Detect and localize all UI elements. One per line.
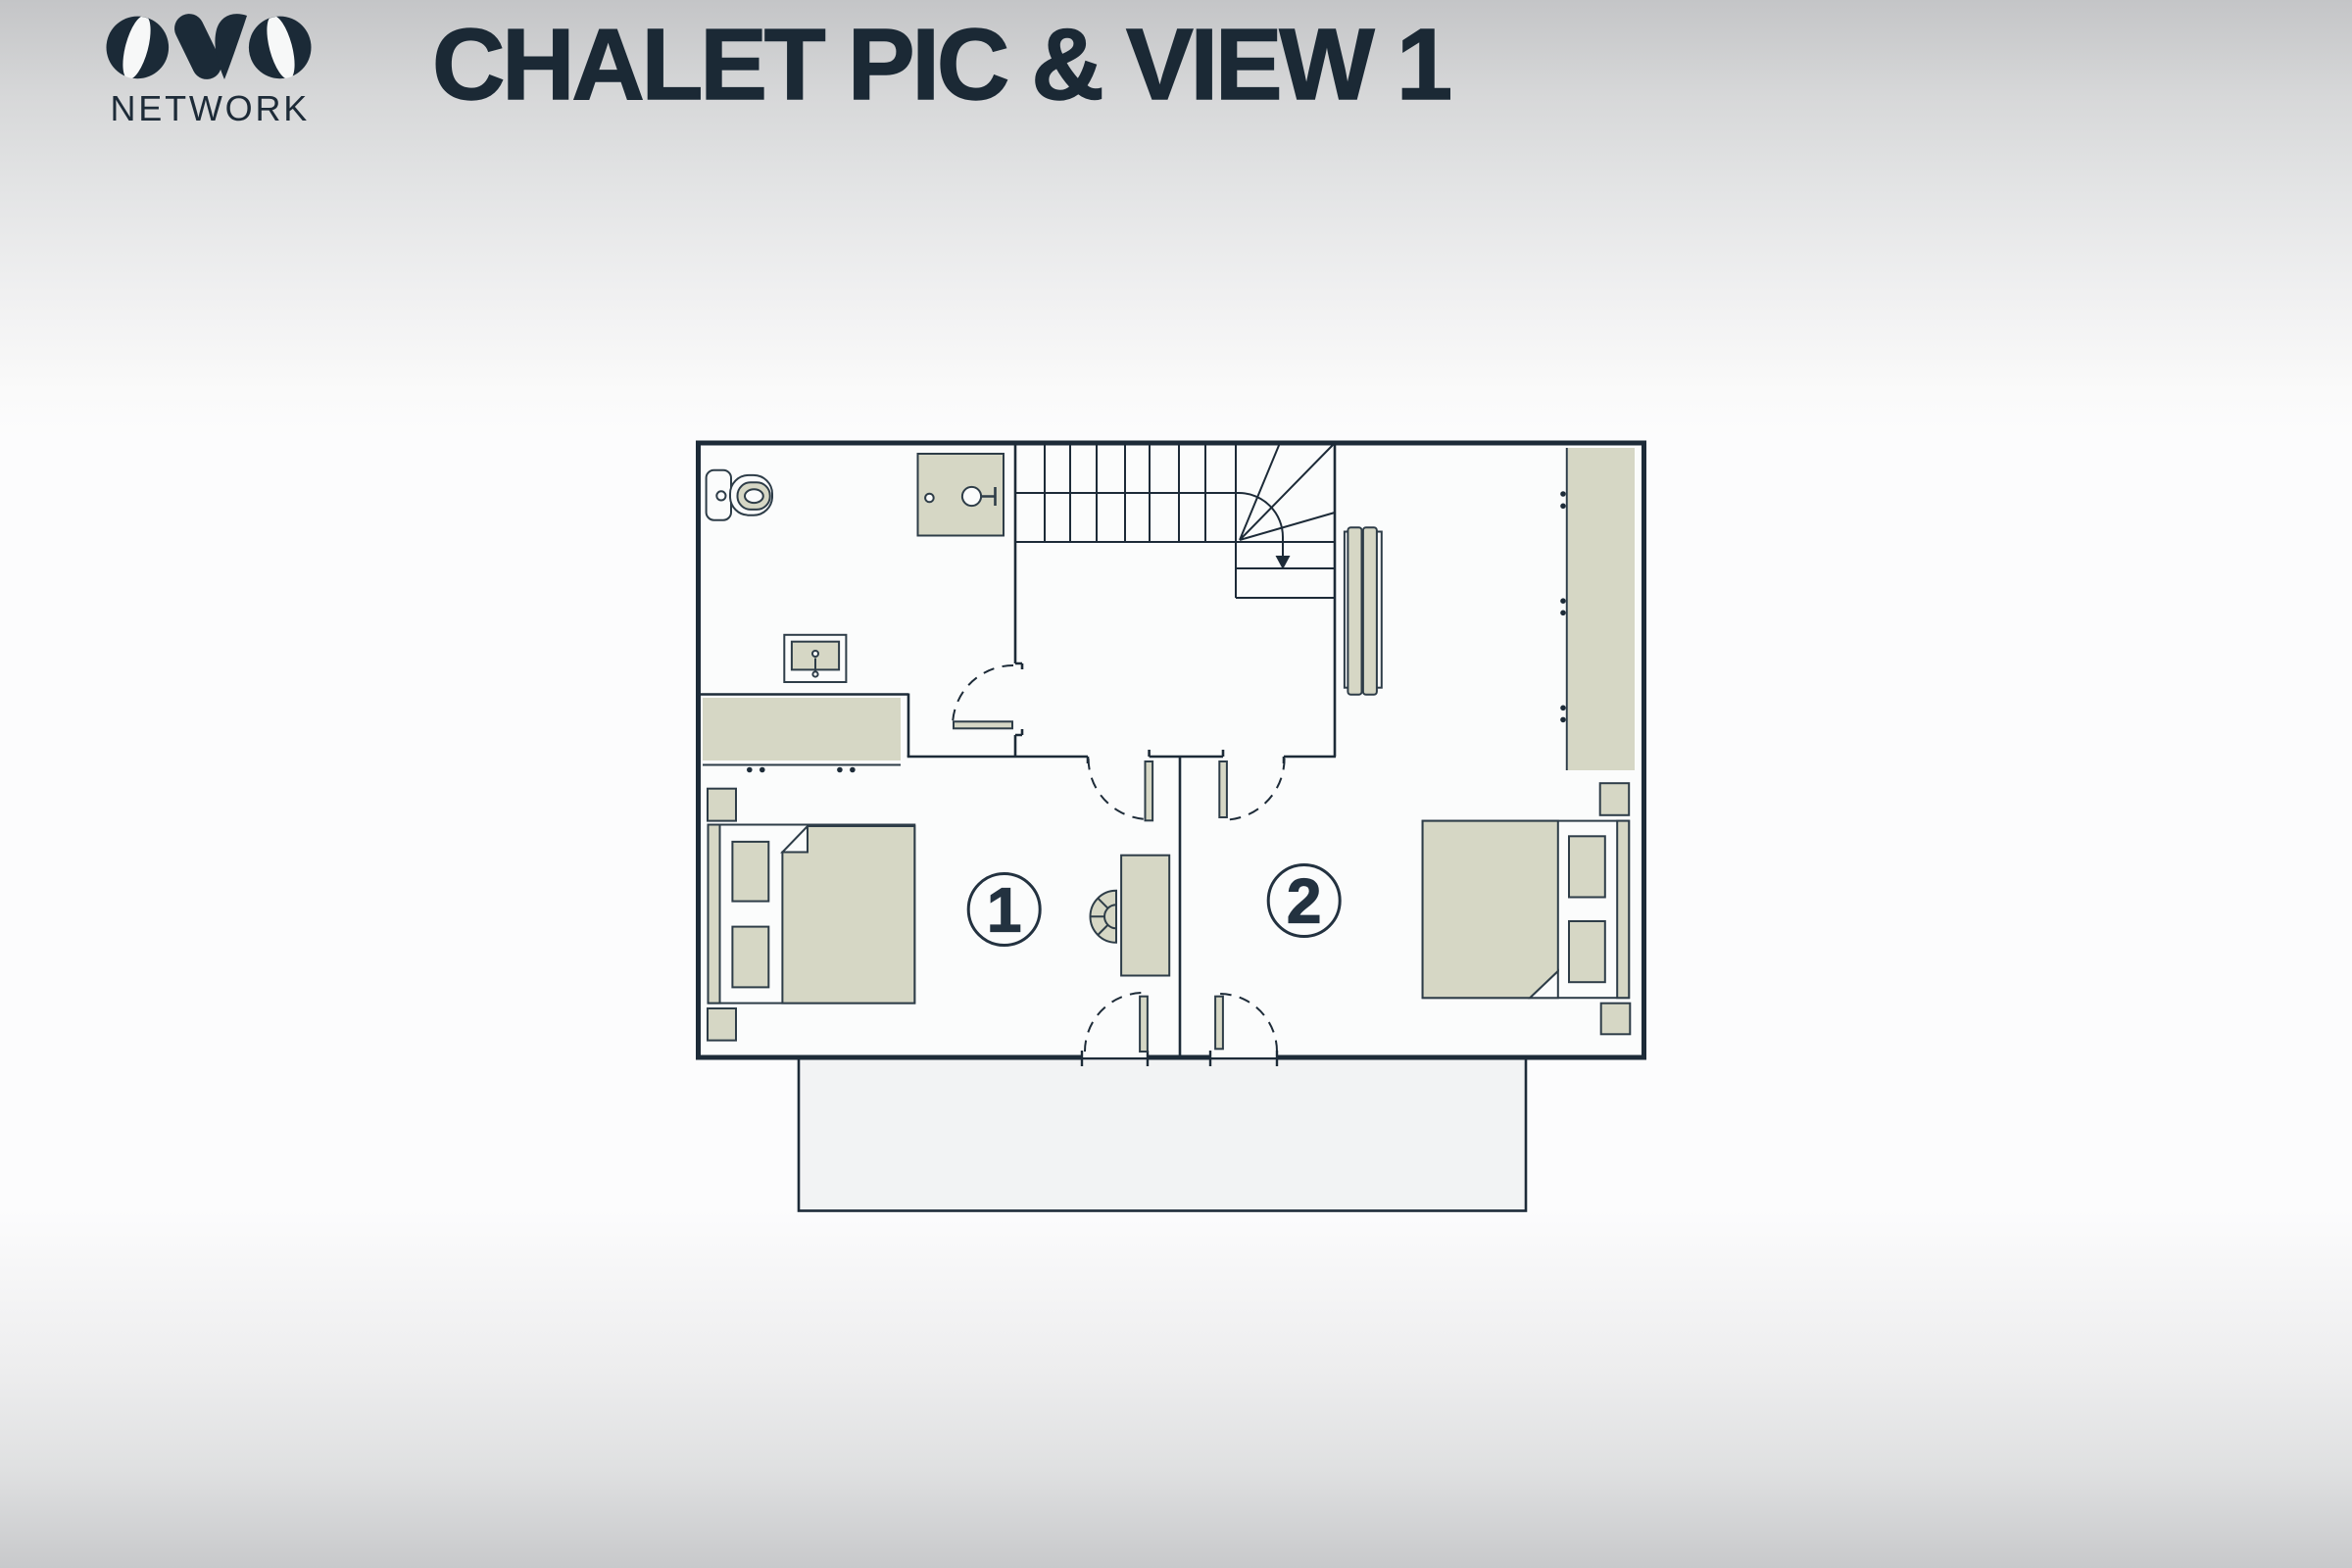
svg-text:CHALET PIC & VIEW 1: CHALET PIC & VIEW 1 [432, 8, 1450, 121]
svg-text:1: 1 [987, 875, 1022, 946]
svg-text:NETWORK: NETWORK [111, 88, 311, 128]
svg-text:2: 2 [1287, 866, 1322, 937]
